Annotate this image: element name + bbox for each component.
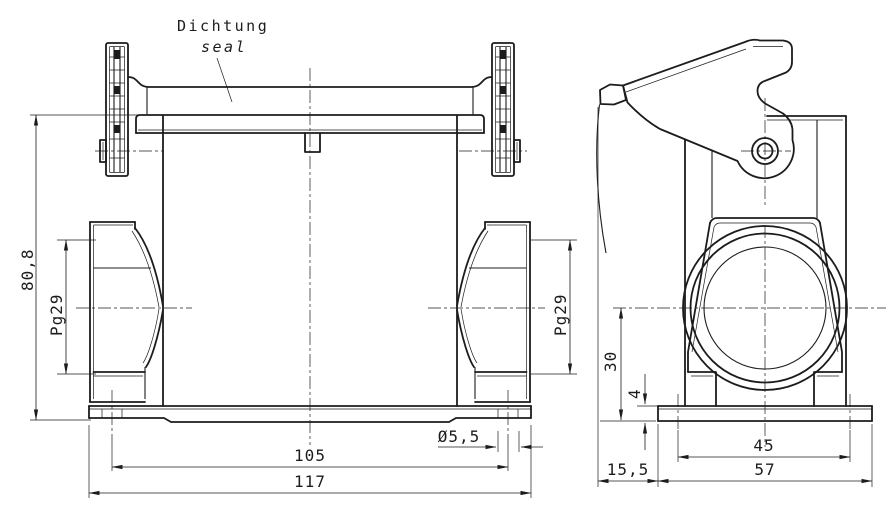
- front-left-cable-boss: [90, 222, 163, 402]
- dim-overall-width-label: 117: [294, 472, 326, 491]
- seal-label-en: seal: [201, 38, 247, 56]
- drawing-canvas: 80,8 Pg29 Pg29 105: [0, 0, 891, 514]
- dim-mounting-hole-spacing: 105: [112, 444, 508, 471]
- dim-overall-height-label: 80,8: [18, 248, 37, 291]
- seal-leader-line: [217, 58, 232, 102]
- dim-cable-entry-right: Pg29: [531, 240, 577, 374]
- dim-lever-offset: 15,5: [598, 107, 658, 487]
- dim-foot-hole-spacing: 45: [678, 430, 850, 462]
- dim-foot-width-label: 57: [754, 460, 775, 479]
- technical-drawing-page: 80,8 Pg29 Pg29 105: [0, 0, 891, 514]
- dim-foot-hole-spacing-label: 45: [753, 436, 774, 455]
- front-right-latch: [492, 43, 520, 176]
- dim-entry-center-height-label: 30: [601, 351, 620, 372]
- front-view: 80,8 Pg29 Pg29 105: [18, 43, 577, 498]
- front-dimensions: 80,8 Pg29 Pg29 105: [18, 115, 577, 498]
- dim-mounting-hole-diameter-label: Ø5,5: [438, 427, 481, 446]
- side-view: 30 4 45 57 15: [597, 40, 886, 487]
- dim-cable-entry-left-label: Pg29: [47, 293, 66, 336]
- seal-annotation: Dichtung seal: [177, 17, 269, 102]
- front-left-latch: [100, 43, 128, 176]
- dim-base-thickness-label: 4: [625, 388, 644, 399]
- dim-cable-entry-right-label: Pg29: [551, 293, 570, 336]
- side-dimensions: 30 4 45 57 15: [598, 107, 872, 487]
- front-right-cable-boss: [457, 222, 530, 402]
- side-centerlines: [613, 98, 886, 447]
- dim-mounting-hole-diameter: Ø5,5: [438, 427, 543, 452]
- seal-label-de: Dichtung: [177, 17, 269, 35]
- dim-cable-entry-left: Pg29: [47, 240, 96, 374]
- side-locking-lever: [597, 40, 794, 253]
- dim-base-thickness: 4: [625, 374, 659, 450]
- dim-mounting-hole-spacing-label: 105: [294, 446, 326, 465]
- dim-lever-offset-label: 15,5: [607, 460, 650, 479]
- dim-entry-center-height: 30: [600, 308, 656, 421]
